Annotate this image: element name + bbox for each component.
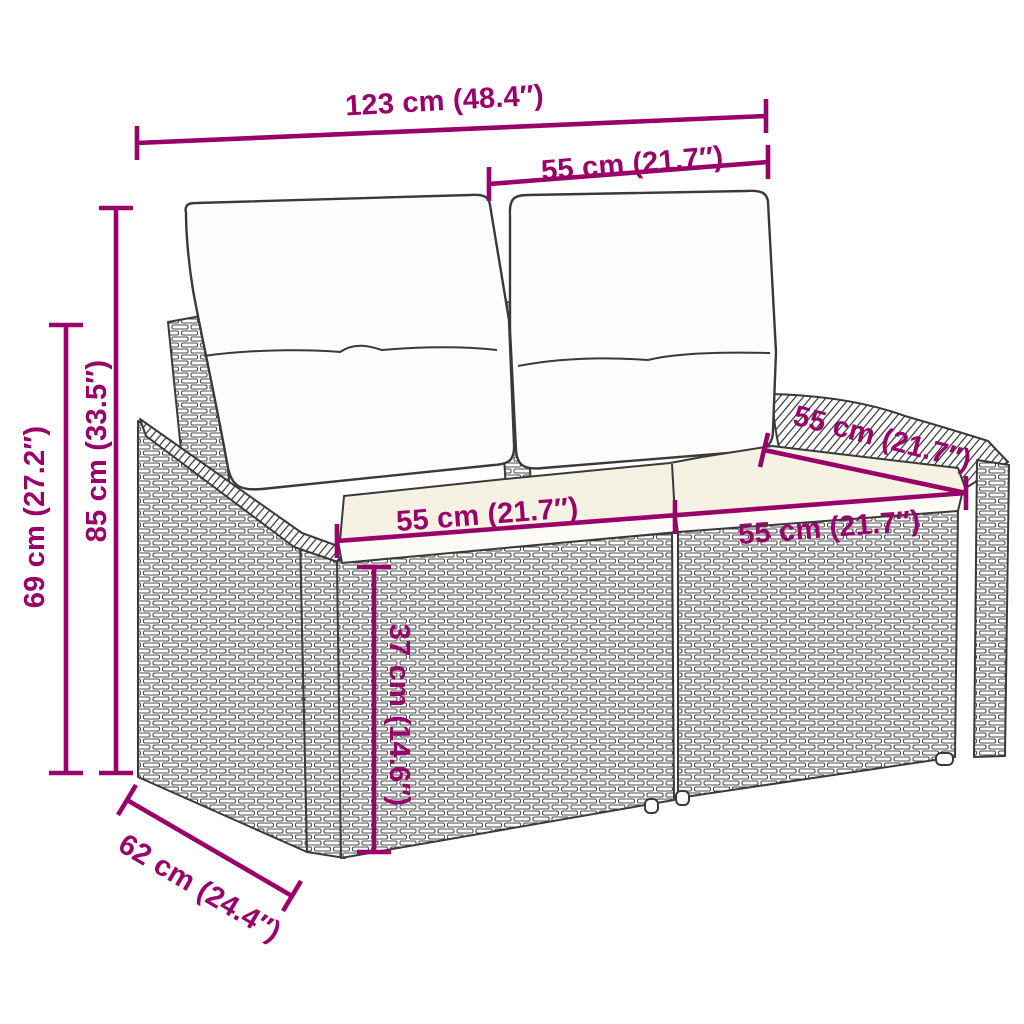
- back-pillow-right: [510, 191, 776, 469]
- dimension-diagram: 123 cm (48.4″) 55 cm (21.7″) 85 cm (33.5…: [0, 0, 1024, 1024]
- dimension-diagram-page: 123 cm (48.4″) 55 cm (21.7″) 85 cm (33.5…: [0, 0, 1024, 1024]
- label-overall-depth: 62 cm (24.4″): [113, 828, 287, 948]
- back-pillow-left: [186, 195, 514, 490]
- dim-line-armrest-height: [49, 325, 83, 773]
- label-overall-width: 123 cm (48.4″): [344, 79, 544, 122]
- right-armrest-side: [974, 460, 1009, 757]
- sofa-foot: [936, 753, 953, 765]
- label-seat-height: 37 cm (14.6″): [383, 624, 415, 807]
- sofa-foot: [645, 799, 658, 813]
- label-overall-height: 85 cm (33.5″): [81, 360, 113, 543]
- front-panel-right: [678, 510, 958, 798]
- label-armrest-height: 69 cm (27.2″): [19, 426, 51, 609]
- sofa-foot: [676, 791, 689, 805]
- label-backrest-width: 55 cm (21.7″): [540, 141, 725, 188]
